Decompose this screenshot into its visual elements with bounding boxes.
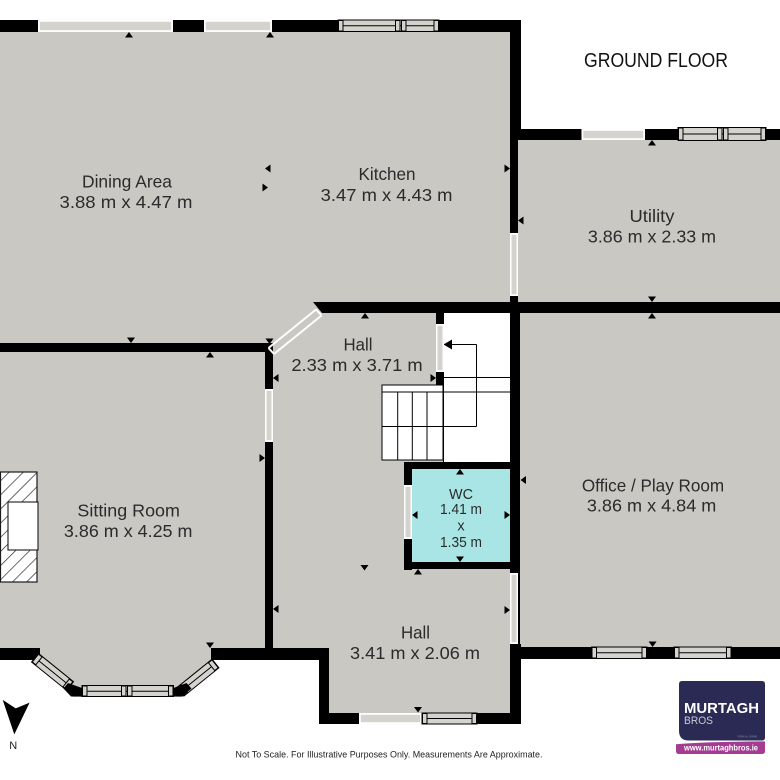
svg-text:WC: WC: [449, 487, 473, 503]
svg-text:3.88 m x 4.47 m: 3.88 m x 4.47 m: [60, 192, 193, 212]
svg-text:Dining Area: Dining Area: [82, 172, 172, 192]
svg-text:2.33 m x 3.71 m: 2.33 m x 3.71 m: [291, 355, 422, 375]
svg-text:Not To Scale. For Illustrative: Not To Scale. For Illustrative Purposes …: [236, 750, 543, 761]
svg-text:Utility: Utility: [630, 206, 675, 226]
svg-text:x: x: [457, 519, 465, 535]
svg-text:www.murtaghbros.ie: www.murtaghbros.ie: [683, 743, 758, 753]
svg-text:Office / Play Room: Office / Play Room: [582, 476, 724, 496]
svg-text:3.86 m x 4.84 m: 3.86 m x 4.84 m: [587, 496, 717, 516]
svg-text:Kitchen: Kitchen: [359, 164, 416, 184]
svg-text:N: N: [9, 740, 17, 752]
svg-text:3.86 m x 2.33 m: 3.86 m x 2.33 m: [588, 227, 716, 247]
svg-text:Hall: Hall: [344, 335, 373, 355]
svg-text:PSRA No. 004040: PSRA No. 004040: [738, 736, 758, 739]
svg-text:3.86 m x 4.25 m: 3.86 m x 4.25 m: [64, 521, 193, 541]
svg-text:Sitting Room: Sitting Room: [77, 501, 180, 521]
svg-text:Hall: Hall: [401, 623, 430, 643]
svg-text:1.41 m: 1.41 m: [440, 502, 482, 518]
svg-text:3.47 m x 4.43 m: 3.47 m x 4.43 m: [321, 185, 453, 205]
svg-text:BROS: BROS: [684, 715, 713, 727]
svg-text:1.35 m: 1.35 m: [440, 535, 482, 551]
svg-text:3.41 m x 2.06 m: 3.41 m x 2.06 m: [350, 643, 480, 663]
svg-text:GROUND FLOOR: GROUND FLOOR: [584, 50, 728, 72]
